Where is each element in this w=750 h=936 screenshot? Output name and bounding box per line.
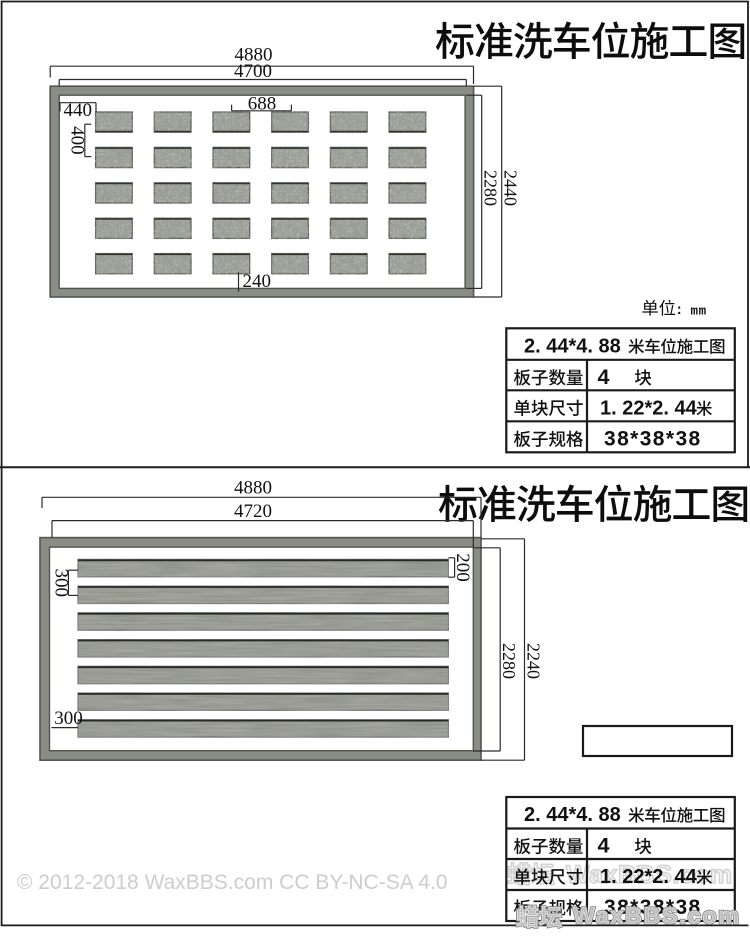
svg-text:2. 44*4. 88: 2. 44*4. 88: [524, 804, 621, 826]
svg-text:2280: 2280: [499, 643, 519, 679]
svg-text:2440: 2440: [500, 170, 520, 206]
svg-text:4: 4: [598, 834, 610, 858]
svg-text:2. 44*4. 88: 2. 44*4. 88: [524, 335, 621, 357]
svg-text:400: 400: [67, 126, 88, 155]
svg-text:WaxBBS.com: WaxBBS.com: [573, 903, 741, 929]
svg-text:4880: 4880: [234, 478, 272, 499]
svg-text:300: 300: [50, 569, 71, 598]
svg-text:38*38*38: 38*38*38: [604, 427, 702, 450]
svg-text:440: 440: [64, 100, 93, 121]
svg-text:WaxBBS.com: WaxBBS.com: [566, 861, 733, 889]
svg-text:1. 22*2. 44: 1. 22*2. 44: [600, 397, 698, 419]
svg-text:240: 240: [243, 271, 272, 292]
svg-text:688: 688: [248, 93, 277, 114]
svg-text:300: 300: [54, 708, 83, 729]
svg-text:2280: 2280: [480, 170, 500, 206]
svg-text:4700: 4700: [234, 61, 272, 82]
svg-text:4: 4: [598, 365, 610, 389]
svg-text:2240: 2240: [523, 643, 543, 679]
svg-text:mm: mm: [691, 304, 707, 318]
svg-text:200: 200: [452, 553, 473, 582]
svg-text:4720: 4720: [234, 501, 272, 522]
svg-text:© 2012-2018 WaxBBS.com CC BY-N: © 2012-2018 WaxBBS.com CC BY-NC-SA 4.0: [17, 871, 448, 894]
svg-text::: :: [675, 303, 683, 319]
